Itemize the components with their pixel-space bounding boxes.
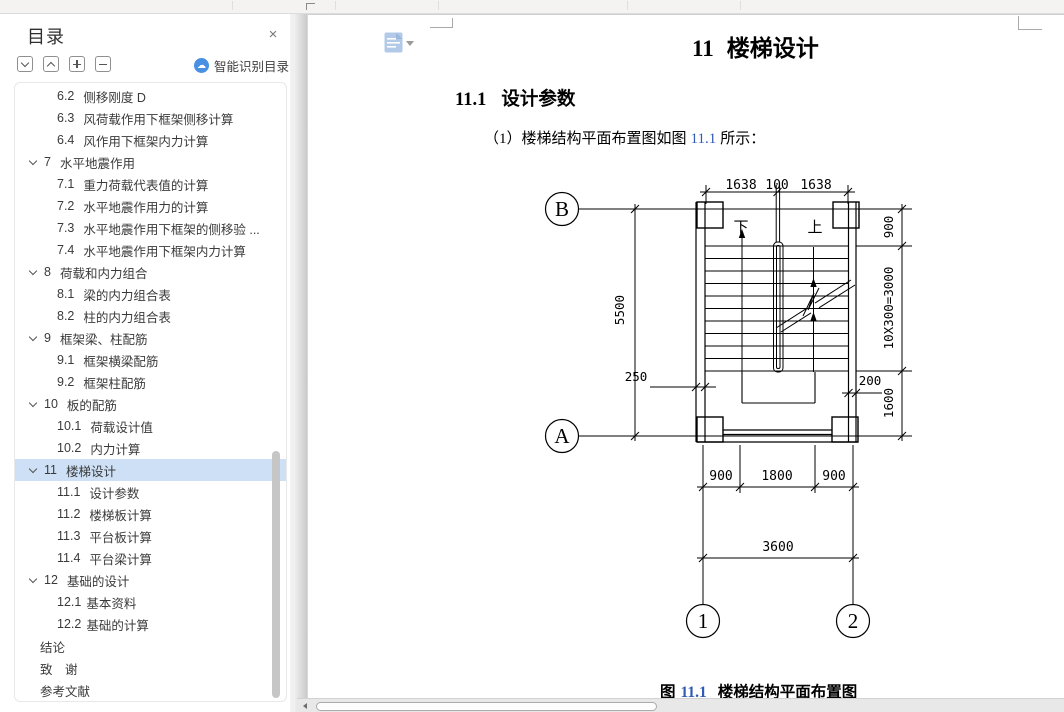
toc-item-number: 7 xyxy=(44,155,51,169)
dim-200-label: 200 xyxy=(859,373,882,388)
toc-item[interactable]: 9 框架梁、柱配筋 xyxy=(15,327,286,349)
expand-button[interactable] xyxy=(69,56,85,72)
toc-scrollbar-thumb[interactable] xyxy=(272,451,280,698)
toc-item-label: 风荷载作用下框架侧移计算 xyxy=(83,109,233,128)
toc-item[interactable]: 9.2 框架柱配筋 xyxy=(15,371,286,393)
ruler-origin-icon xyxy=(306,3,315,4)
axis-lines xyxy=(579,209,912,604)
dim-3600: 3600 xyxy=(762,540,793,555)
toc-item-label: 水平地震作用下框架的侧移验 ... xyxy=(83,219,259,238)
toc-item[interactable]: 8.1 梁的内力组合表 xyxy=(15,283,286,305)
panel-resize-gutter[interactable] xyxy=(290,14,308,712)
up-label: 上 xyxy=(807,218,822,236)
toc-item-number: 7.1 xyxy=(57,177,74,191)
toc-item-number: 10.1 xyxy=(57,419,81,433)
toc-item-label: 框架横梁配筋 xyxy=(83,351,158,370)
toc-item-label: 荷载和内力组合 xyxy=(60,263,148,282)
margin-crop-mark xyxy=(430,27,453,28)
dim-10x300: 10X300=3000 xyxy=(881,267,896,350)
toc-item[interactable]: 9.1 框架横梁配筋 xyxy=(15,349,286,371)
chapter-title: 11楼梯设计 xyxy=(692,29,819,63)
toc-item[interactable]: 7 水平地震作用 xyxy=(15,151,286,173)
toc-item[interactable]: 7.2 水平地震作用力的计算 xyxy=(15,195,286,217)
toc-item[interactable]: 11.2 楼梯板计算 xyxy=(15,503,286,525)
toc-item-label: 平台板计算 xyxy=(89,527,152,546)
toc-item-number: 8 xyxy=(44,265,51,279)
toc-list: 6.2 侧移刚度 D 6.3 风荷载作用下框架侧移计算 6.4 风作用下框架内力… xyxy=(15,83,286,701)
toc-item-label: 重力荷载代表值的计算 xyxy=(83,175,208,194)
horizontal-scrollbar-thumb[interactable] xyxy=(316,702,657,711)
caret-down-icon[interactable] xyxy=(28,403,44,406)
down-label: 下 xyxy=(733,218,748,236)
toc-item[interactable]: 10.2 内力计算 xyxy=(15,437,286,459)
caret-down-icon[interactable] xyxy=(28,579,44,582)
cloud-icon: ☁ xyxy=(194,58,209,73)
toolbar-bottom-strip xyxy=(0,0,1064,14)
dim-1638-left: 1638 xyxy=(725,178,756,193)
toolbar-separator xyxy=(627,1,628,10)
toc-item-number: 6.2 xyxy=(57,89,74,103)
toc-item-label: 设计参数 xyxy=(89,483,139,502)
toc-item[interactable]: 8 荷载和内力组合 xyxy=(15,261,286,283)
axis-label-2: 2 xyxy=(848,609,859,633)
toc-item-label: 楼梯板计算 xyxy=(89,505,152,524)
toc-item[interactable]: 12 基础的设计 xyxy=(15,569,286,591)
toc-item-label: 结论 xyxy=(40,637,65,656)
toc-item-label: 基础的计算 xyxy=(86,615,149,634)
toc-item-label: 内力计算 xyxy=(90,439,140,458)
toc-panel-title: 目录 xyxy=(27,23,65,49)
toc-item-number: 9.1 xyxy=(57,353,74,367)
toc-item-label: 柱的内力组合表 xyxy=(83,307,171,326)
toc-item-number: 7.4 xyxy=(57,243,74,257)
close-icon[interactable]: × xyxy=(264,26,282,44)
toc-item[interactable]: 6.2 侧移刚度 D xyxy=(15,85,286,107)
toc-item-label: 参考文献 xyxy=(40,681,90,700)
stair-railing xyxy=(774,185,784,372)
toc-item-label: 荷载设计值 xyxy=(90,417,153,436)
minus-icon xyxy=(99,64,107,65)
toc-item-label: 水平地震作用 xyxy=(60,153,135,172)
toc-item-number: 11.1 xyxy=(57,485,80,499)
toc-item-label: 基础的设计 xyxy=(67,571,130,590)
toc-item-number: 10.2 xyxy=(57,441,81,455)
caret-down-icon[interactable] xyxy=(28,337,44,340)
toc-item-number: 8.1 xyxy=(57,287,74,301)
toc-item[interactable]: 11 楼梯设计 xyxy=(15,459,286,481)
caret-down-icon[interactable] xyxy=(28,271,44,274)
toc-panel: 目录 × ☁ 智能识别目录 6.2 侧移刚度 D 6.3 风荷载作用下框架侧移计… xyxy=(0,14,290,712)
toc-item-label: 侧移刚度 D xyxy=(83,87,146,106)
smart-recognize-label: 智能识别目录 xyxy=(214,56,289,75)
toc-item-number: 12.1 xyxy=(57,595,81,609)
toc-item[interactable]: 10.1 荷载设计值 xyxy=(15,415,286,437)
toc-item-label: 楼梯设计 xyxy=(66,461,116,480)
dim-900-bl: 900 xyxy=(709,469,732,484)
toc-item-number: 11.3 xyxy=(57,529,80,543)
toc-item[interactable]: 致 谢 xyxy=(15,657,286,679)
collapse-all-up-button[interactable] xyxy=(43,56,59,72)
caret-down-icon[interactable] xyxy=(28,469,44,472)
axis-label-A: A xyxy=(554,424,570,448)
toc-item-label: 平台梁计算 xyxy=(89,549,152,568)
toc-item[interactable]: 12.2 基础的计算 xyxy=(15,613,286,635)
toc-item[interactable]: 8.2 柱的内力组合表 xyxy=(15,305,286,327)
margin-crop-mark xyxy=(1018,29,1042,30)
toc-item-number: 6.4 xyxy=(57,133,74,147)
toc-item-number: 9 xyxy=(44,331,51,345)
toc-item[interactable]: 6.4 风作用下框架内力计算 xyxy=(15,129,286,151)
direction-lines xyxy=(739,229,817,372)
toc-box: 6.2 侧移刚度 D 6.3 风荷载作用下框架侧移计算 6.4 风作用下框架内力… xyxy=(14,82,287,702)
toolbar-separator xyxy=(438,1,439,10)
toc-item-label: 风作用下框架内力计算 xyxy=(83,131,208,150)
chapter-collapse-icon[interactable] xyxy=(384,32,403,53)
axis-label-B: B xyxy=(555,197,569,221)
smart-recognize-toc-button[interactable]: ☁ 智能识别目录 xyxy=(194,56,289,75)
toc-item-number: 10 xyxy=(44,397,58,411)
landing-platform xyxy=(742,372,815,403)
dim-5500: 5500 xyxy=(612,295,627,325)
dim-left xyxy=(631,204,716,441)
chevron-up-icon xyxy=(47,61,55,69)
toc-item-number: 11.2 xyxy=(57,507,80,521)
toc-item-label: 板的配筋 xyxy=(67,395,117,414)
dim-900-right: 900 xyxy=(881,216,896,239)
toc-item[interactable]: 结论 xyxy=(15,635,286,657)
toc-item[interactable]: 11.1 设计参数 xyxy=(15,481,286,503)
axis-bubbles xyxy=(546,193,870,638)
dim-100: 100 xyxy=(765,178,788,193)
toc-item-number: 8.2 xyxy=(57,309,74,323)
toc-item-label: 梁的内力组合表 xyxy=(83,285,171,304)
collapse-button[interactable] xyxy=(95,56,111,72)
toolbar-separator xyxy=(335,1,336,10)
toc-item-number: 11 xyxy=(44,463,57,477)
toc-item-label: 框架梁、柱配筋 xyxy=(60,329,148,348)
ruler-origin-icon xyxy=(306,3,307,10)
toolbar-separator xyxy=(232,1,233,10)
stair-plan-drawing: 下 上 1638 100 1638 xyxy=(520,160,920,700)
toc-item-number: 7.3 xyxy=(57,221,74,235)
toc-item[interactable]: 7.1 重力荷载代表值的计算 xyxy=(15,173,286,195)
toc-item[interactable]: 参考文献 xyxy=(15,679,286,701)
toc-item[interactable]: 7.4 水平地震作用下框架内力计算 xyxy=(15,239,286,261)
toolbar-separator xyxy=(740,1,741,10)
margin-crop-mark xyxy=(1018,16,1019,30)
dim-900-br: 900 xyxy=(822,469,845,484)
toc-item-number: 12 xyxy=(44,573,58,587)
toc-item-label: 水平地震作用力的计算 xyxy=(83,197,208,216)
toc-item-label: 致 谢 xyxy=(40,659,78,678)
dim-1800: 1800 xyxy=(761,469,792,484)
toc-item[interactable]: 10 板的配筋 xyxy=(15,393,286,415)
toc-item-label: 框架柱配筋 xyxy=(83,373,146,392)
toc-item-label: 水平地震作用下框架内力计算 xyxy=(83,241,246,260)
toc-item[interactable]: 11.4 平台梁计算 xyxy=(15,547,286,569)
axis-label-1: 1 xyxy=(698,609,709,633)
chevron-down-icon xyxy=(21,58,29,66)
toc-item-number: 7.2 xyxy=(57,199,74,213)
dim-250: 250 xyxy=(625,369,648,384)
toc-item[interactable]: 12.1 基本资料 xyxy=(15,591,286,613)
toc-item-number: 6.3 xyxy=(57,111,74,125)
column-squares xyxy=(697,202,859,442)
caret-down-icon[interactable] xyxy=(28,161,44,164)
toc-item[interactable]: 11.3 平台板计算 xyxy=(15,525,286,547)
figure-reference-link: 11.1 xyxy=(691,131,717,147)
wps-document-window: 目录 × ☁ 智能识别目录 6.2 侧移刚度 D 6.3 风荷载作用下框架侧移计… xyxy=(0,0,1064,712)
toc-item[interactable]: 6.3 风荷载作用下框架侧移计算 xyxy=(15,107,286,129)
toc-item-number: 12.2 xyxy=(57,617,81,631)
toc-item-label: 基本资料 xyxy=(86,593,136,612)
toc-item-number: 9.2 xyxy=(57,375,74,389)
scroll-left-arrow-icon[interactable] xyxy=(303,703,307,709)
toc-item-number: 11.4 xyxy=(57,551,80,565)
dim-1600: 1600 xyxy=(881,388,896,418)
toc-item[interactable]: 7.3 水平地震作用下框架的侧移验 ... xyxy=(15,217,286,239)
break-line xyxy=(776,280,855,332)
chevron-down-icon[interactable] xyxy=(406,41,414,46)
dim-1638-right: 1638 xyxy=(800,178,831,193)
expand-all-down-button[interactable] xyxy=(17,56,33,72)
section-heading: 11.1设计参数 xyxy=(455,85,575,111)
body-paragraph: （1）楼梯结构平面布置图如图11.1所示： xyxy=(484,127,765,148)
horizontal-scrollbar[interactable] xyxy=(297,698,1064,712)
